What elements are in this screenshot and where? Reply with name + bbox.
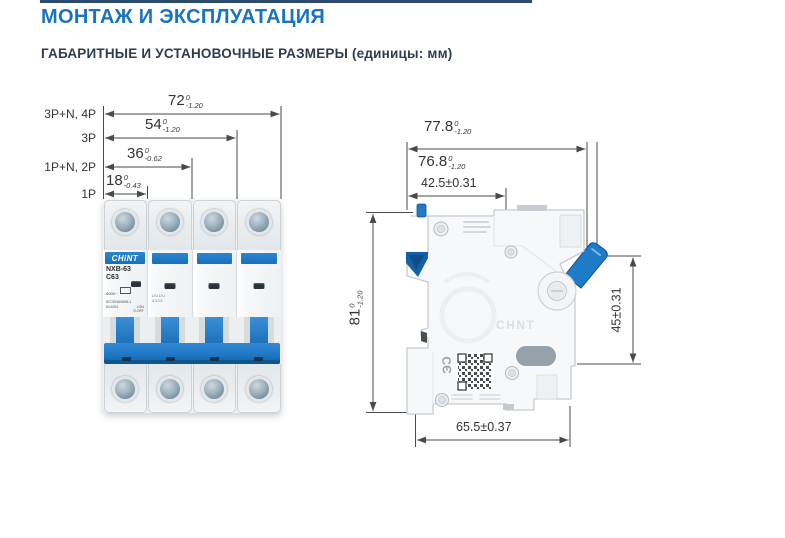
pole-2: UUUU3333 (148, 250, 193, 317)
model-text: NXB-63 (103, 264, 147, 274)
toggle-lever (565, 243, 607, 288)
pole-label-4p: 3P+N, 4P (24, 107, 96, 121)
dim-width-4p: 72 0-1.20 (168, 93, 203, 109)
handle-stem (161, 317, 179, 345)
dim-width-2p: 36 0-0.62 (127, 146, 162, 162)
terminal (237, 364, 281, 413)
chint-logo: CHiNT (105, 252, 145, 264)
terminal (104, 200, 148, 250)
status-indicator (254, 283, 265, 289)
pole-blue-bar (197, 253, 233, 264)
pole-label-3p: 3P (24, 131, 96, 145)
dim-bottom-width: 65.5±0.37 (456, 420, 512, 434)
terminal-screw (112, 209, 138, 235)
on-off-marks: I-ON O-OFF (133, 305, 144, 313)
side-view-dimension-lines (366, 142, 641, 447)
handle-stem (116, 317, 134, 345)
brand-watermark: CHNT (496, 318, 535, 332)
din-clip (406, 252, 428, 277)
case-screws (434, 222, 519, 407)
pole-label-2p: 1P+N, 2P (24, 160, 96, 174)
terminal-lip (517, 205, 547, 211)
terminal-screw (157, 376, 183, 402)
pole-3 (193, 250, 238, 317)
terminal-screw (201, 376, 227, 402)
mount-slot (516, 346, 556, 366)
breaker-face-row: CHiNT NXB-63 C63 400V~ IEC/EN60898-1 814… (103, 250, 281, 317)
top-clip-tab (417, 204, 426, 217)
page-title: МОНТАЖ И ЭКСПЛУАТАЦИЯ (41, 6, 325, 29)
handle-stem (205, 317, 223, 345)
terminal-screw (246, 376, 272, 402)
terminal (148, 364, 192, 413)
terminal-screw (112, 376, 138, 402)
dim-width-1p: 18 0-0.43 (106, 173, 141, 189)
side-view-body (406, 204, 607, 414)
terminal (104, 364, 148, 413)
dim-body-width: 76.8 0-1.20 (418, 154, 465, 170)
dim-overall-width: 77.8 0-1.20 (424, 119, 471, 135)
pole-blue-bar (241, 253, 277, 264)
ce-mark: CЄ (439, 356, 454, 374)
pole-blue-bar (152, 253, 188, 264)
section-divider-bar (40, 0, 532, 3)
terminal-screw (246, 209, 272, 235)
pole-4 (237, 250, 281, 317)
section-subtitle: ГАБАРИТНЫЕ И УСТАНОВОЧНЫЕ РАЗМЕРЫ (едини… (41, 46, 452, 61)
wiring-marks: UUUU3333 (152, 294, 166, 303)
pole-label-1p: 1P (24, 187, 96, 201)
top-terminal-row (103, 200, 281, 250)
terminal-slot-top (560, 215, 581, 247)
bottom-terminal-row (103, 364, 281, 413)
handle-row (103, 317, 281, 364)
dim-top-mount: 42.5±0.31 (421, 176, 477, 190)
din-foot (503, 404, 514, 410)
terminal-screw (201, 209, 227, 235)
terminal (193, 200, 237, 250)
qr-code (456, 352, 494, 392)
dim-din-height: 45±0.31 (610, 287, 624, 332)
status-indicator (131, 281, 141, 287)
dim-height: 81 0-1.20 (347, 291, 363, 326)
breaker-front-photo: CHiNT NXB-63 C63 400V~ IEC/EN60898-1 814… (103, 200, 281, 413)
handle-stem (250, 317, 268, 345)
status-indicator (209, 283, 220, 289)
pivot-boss (538, 272, 576, 310)
pole-1-label-area: CHiNT NXB-63 C63 400V~ IEC/EN60898-1 814… (103, 250, 148, 317)
toggle-handle-bar (104, 343, 280, 364)
terminal-slot-bottom (537, 375, 557, 399)
voltage-text: 400V~ (103, 291, 118, 296)
page: МОНТАЖ И ЭКСПЛУАТАЦИЯ ГАБАРИТНЫЕ И УСТАН… (0, 0, 785, 538)
status-indicator (164, 283, 175, 289)
brand-text: CHiNT (112, 254, 138, 263)
terminal (148, 200, 192, 250)
dim-width-3p: 54 0-1.20 (145, 117, 180, 133)
terminal (237, 200, 281, 250)
terminal (193, 364, 237, 413)
terminal-screw (157, 209, 183, 235)
cert-box (120, 287, 131, 294)
